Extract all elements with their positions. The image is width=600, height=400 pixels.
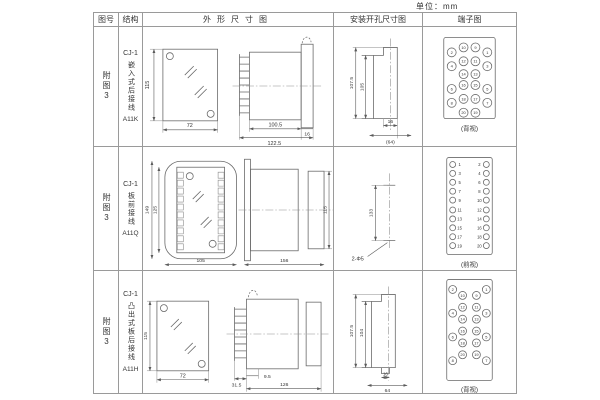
- terminal-number: 20: [460, 352, 465, 357]
- fig-no-label: 附图3: [102, 71, 110, 102]
- terminal-number: 5: [486, 86, 489, 91]
- terminal-number: 15: [473, 82, 478, 87]
- dim-label: 16: [383, 371, 388, 376]
- terminal-number: 6: [478, 179, 481, 184]
- terminal-number: 3: [458, 171, 461, 176]
- terminal-number: 9: [475, 292, 477, 297]
- dim-label: 105: [197, 258, 206, 264]
- terminal-number: 3: [486, 63, 489, 68]
- col-header-structure: 结构: [119, 13, 143, 27]
- outline-drawing-a11h: 115 72 9.5 31.5 126: [143, 271, 334, 394]
- terminal-number: 8: [452, 358, 455, 363]
- col-header-install: 安装开孔尺寸图: [334, 13, 423, 27]
- terminal-svg-a11k: 2 10 9 1 4 12 11 3 14 13 6 16 15 5 8 18 …: [423, 27, 516, 147]
- model-label: CJ-1: [123, 291, 138, 298]
- terminal-number: 14: [460, 316, 465, 321]
- terminal-number: 4: [478, 171, 481, 176]
- terminal-svg-a11h: 2 4 6 8 10 12 14 16 18 20 1 3 5 7 9 11 1…: [423, 271, 516, 394]
- dim-label: 122.5: [267, 141, 281, 147]
- terminal-number: 11: [474, 304, 478, 309]
- spec-table: 图号 结构 外形尺寸图 安装开孔尺寸图 端子图 附图3 CJ-1 嵌入式后接线 …: [93, 12, 517, 394]
- terminal-number: 19: [474, 352, 478, 357]
- terminal-number: 11: [457, 207, 462, 212]
- fig-no-label: 附图3: [102, 193, 110, 224]
- install-drawing-a11q: 133 2-Φ5: [334, 147, 423, 271]
- install-svg-a11q: 133 2-Φ5: [334, 147, 422, 271]
- terminal-number: 16: [460, 328, 465, 333]
- dim-label: 72: [180, 373, 186, 379]
- terminal-number: 2: [451, 49, 453, 54]
- fig-no-a11h: 附图3: [94, 271, 119, 394]
- terminal-number: 1: [486, 49, 488, 54]
- terminal-number: 7: [485, 358, 487, 363]
- dim-label: 31.5: [232, 382, 242, 388]
- dim-label: 115: [143, 331, 149, 339]
- dim-label: 72: [187, 122, 193, 128]
- fig-no-a11k: 附图3: [94, 27, 119, 147]
- install-drawing-a11h: 107.5 104 16 64: [334, 271, 423, 394]
- dim-label: 126: [280, 382, 289, 388]
- terminal-number: 17: [474, 340, 478, 345]
- terminal-number: 13: [473, 71, 478, 76]
- terminal-number: 20: [477, 243, 482, 248]
- terminal-number: 9: [458, 197, 461, 202]
- dim-label: 149: [144, 205, 150, 214]
- terminal-number: 16: [461, 82, 466, 87]
- dim-label: 16: [304, 131, 310, 137]
- terminal-number: 19: [457, 243, 462, 248]
- terminal-number: 18: [461, 96, 466, 101]
- terminal-caption: (背视): [461, 384, 478, 393]
- terminal-number: 4: [452, 310, 455, 315]
- terminal-number: 14: [461, 71, 466, 76]
- terminal-diagram-a11h: 2 4 6 8 10 12 14 16 18 20 1 3 5 7 9 11 1…: [423, 271, 517, 394]
- terminal-number: 17: [457, 234, 462, 239]
- hole-spec-label: 2-Φ5: [352, 256, 364, 262]
- dim-label: 115: [145, 80, 151, 89]
- structure-desc: 嵌入式后接线: [126, 61, 136, 112]
- terminal-caption: (背视): [461, 123, 478, 132]
- structure-a11q: CJ-1 板前接线 A11Q: [119, 147, 143, 271]
- structure-desc: 板前接线: [126, 192, 136, 226]
- terminal-number: 1: [485, 286, 487, 291]
- terminal-number: 7: [486, 100, 488, 105]
- terminal-number: 18: [460, 340, 465, 345]
- dim-label: 9.5: [264, 374, 271, 380]
- install-svg-a11h: 107.5 104 16 64: [334, 271, 422, 394]
- terminal-number: 5: [458, 179, 461, 184]
- terminal-number: 1: [458, 162, 461, 167]
- terminal-number: 13: [474, 316, 479, 321]
- outline-svg-a11k: 115 72 100.5 16 122.5: [143, 27, 333, 147]
- dim-label: 100.5: [268, 122, 282, 128]
- terminal-diagram-a11k: 2 10 9 1 4 12 11 3 14 13 6 16 15 5 8 18 …: [423, 27, 517, 147]
- dim-label: 107.5: [349, 76, 355, 89]
- install-drawing-a11k: 107.5 105 16 (64): [334, 27, 423, 147]
- document-page: 单位：mm 图号 结构 外形尺寸图 安装开孔尺寸图 端子图 附图3 CJ-1 嵌…: [0, 0, 600, 400]
- outline-drawing-a11q: 149 125 105 115 156: [143, 147, 334, 271]
- terminal-number: 10: [461, 44, 466, 49]
- model-label: CJ-1: [123, 181, 138, 188]
- terminal-number: 12: [477, 207, 482, 212]
- dim-label: 156: [280, 258, 289, 264]
- dim-label: 16: [388, 119, 394, 125]
- terminal-number: 15: [457, 225, 462, 230]
- terminal-number: 8: [478, 188, 481, 193]
- terminal-number: 19: [473, 110, 477, 115]
- terminal-number: 2: [478, 162, 481, 167]
- terminal-number: 7: [458, 188, 461, 193]
- dim-label: 64: [385, 387, 391, 393]
- dim-label: 125: [152, 205, 158, 214]
- dim-label: 115: [323, 205, 329, 213]
- structure-code: A11H: [123, 366, 139, 373]
- terminal-number: 6: [452, 334, 455, 339]
- terminal-number: 14: [477, 216, 482, 221]
- structure-a11k: CJ-1 嵌入式后接线 A11K: [119, 27, 143, 147]
- terminal-number: 12: [461, 58, 465, 63]
- structure-desc: 凸出式板后接线: [126, 302, 136, 362]
- terminal-number: 3: [485, 310, 488, 315]
- outline-svg-a11q: 149 125 105 115 156: [143, 147, 333, 271]
- terminal-diagram-a11q: 1 3 5 7 9 11 13 15 17 19 2 4 6 8 10 12 1…: [423, 147, 517, 271]
- fig-no-label: 附图3: [102, 317, 110, 348]
- terminal-number: 2: [452, 286, 454, 291]
- terminal-number: 20: [461, 110, 466, 115]
- terminal-number: 9: [474, 44, 476, 49]
- terminal-number: 18: [477, 234, 482, 239]
- terminal-number: 12: [460, 304, 464, 309]
- terminal-number: 11: [473, 58, 477, 63]
- units-label: 单位：mm: [416, 1, 458, 12]
- dim-label: 107.5: [349, 324, 355, 337]
- model-label: CJ-1: [123, 50, 138, 57]
- structure-code: A11K: [123, 116, 138, 123]
- terminal-number: 5: [485, 334, 488, 339]
- terminal-number: 13: [457, 216, 462, 221]
- terminal-number: 10: [460, 292, 465, 297]
- terminal-number: 10: [477, 197, 482, 202]
- terminal-svg-a11q: 1 3 5 7 9 11 13 15 17 19 2 4 6 8 10 12 1…: [423, 147, 516, 271]
- structure-code: A11Q: [122, 230, 138, 237]
- structure-a11h: CJ-1 凸出式板后接线 A11H: [119, 271, 143, 394]
- dim-label: 104: [359, 328, 365, 336]
- dim-label: (64): [386, 139, 395, 145]
- col-header-terminal: 端子图: [423, 13, 517, 27]
- outline-svg-a11h: 115 72 9.5 31.5 126: [143, 271, 333, 394]
- col-header-fig-no: 图号: [94, 13, 119, 27]
- outline-drawing-a11k: 115 72 100.5 16 122.5: [143, 27, 334, 147]
- terminal-number: 15: [474, 328, 479, 333]
- terminal-number: 8: [451, 100, 454, 105]
- col-header-outline: 外形尺寸图: [143, 13, 334, 27]
- dim-label: 133: [369, 208, 375, 216]
- fig-no-a11q: 附图3: [94, 147, 119, 271]
- terminal-number: 4: [451, 63, 454, 68]
- install-svg-a11k: 107.5 105 16 (64): [334, 27, 422, 147]
- terminal-caption: (前视): [461, 259, 478, 268]
- terminal-number: 17: [473, 96, 477, 101]
- dim-label: 105: [360, 82, 366, 90]
- terminal-number: 6: [451, 86, 454, 91]
- terminal-number: 16: [477, 225, 482, 230]
